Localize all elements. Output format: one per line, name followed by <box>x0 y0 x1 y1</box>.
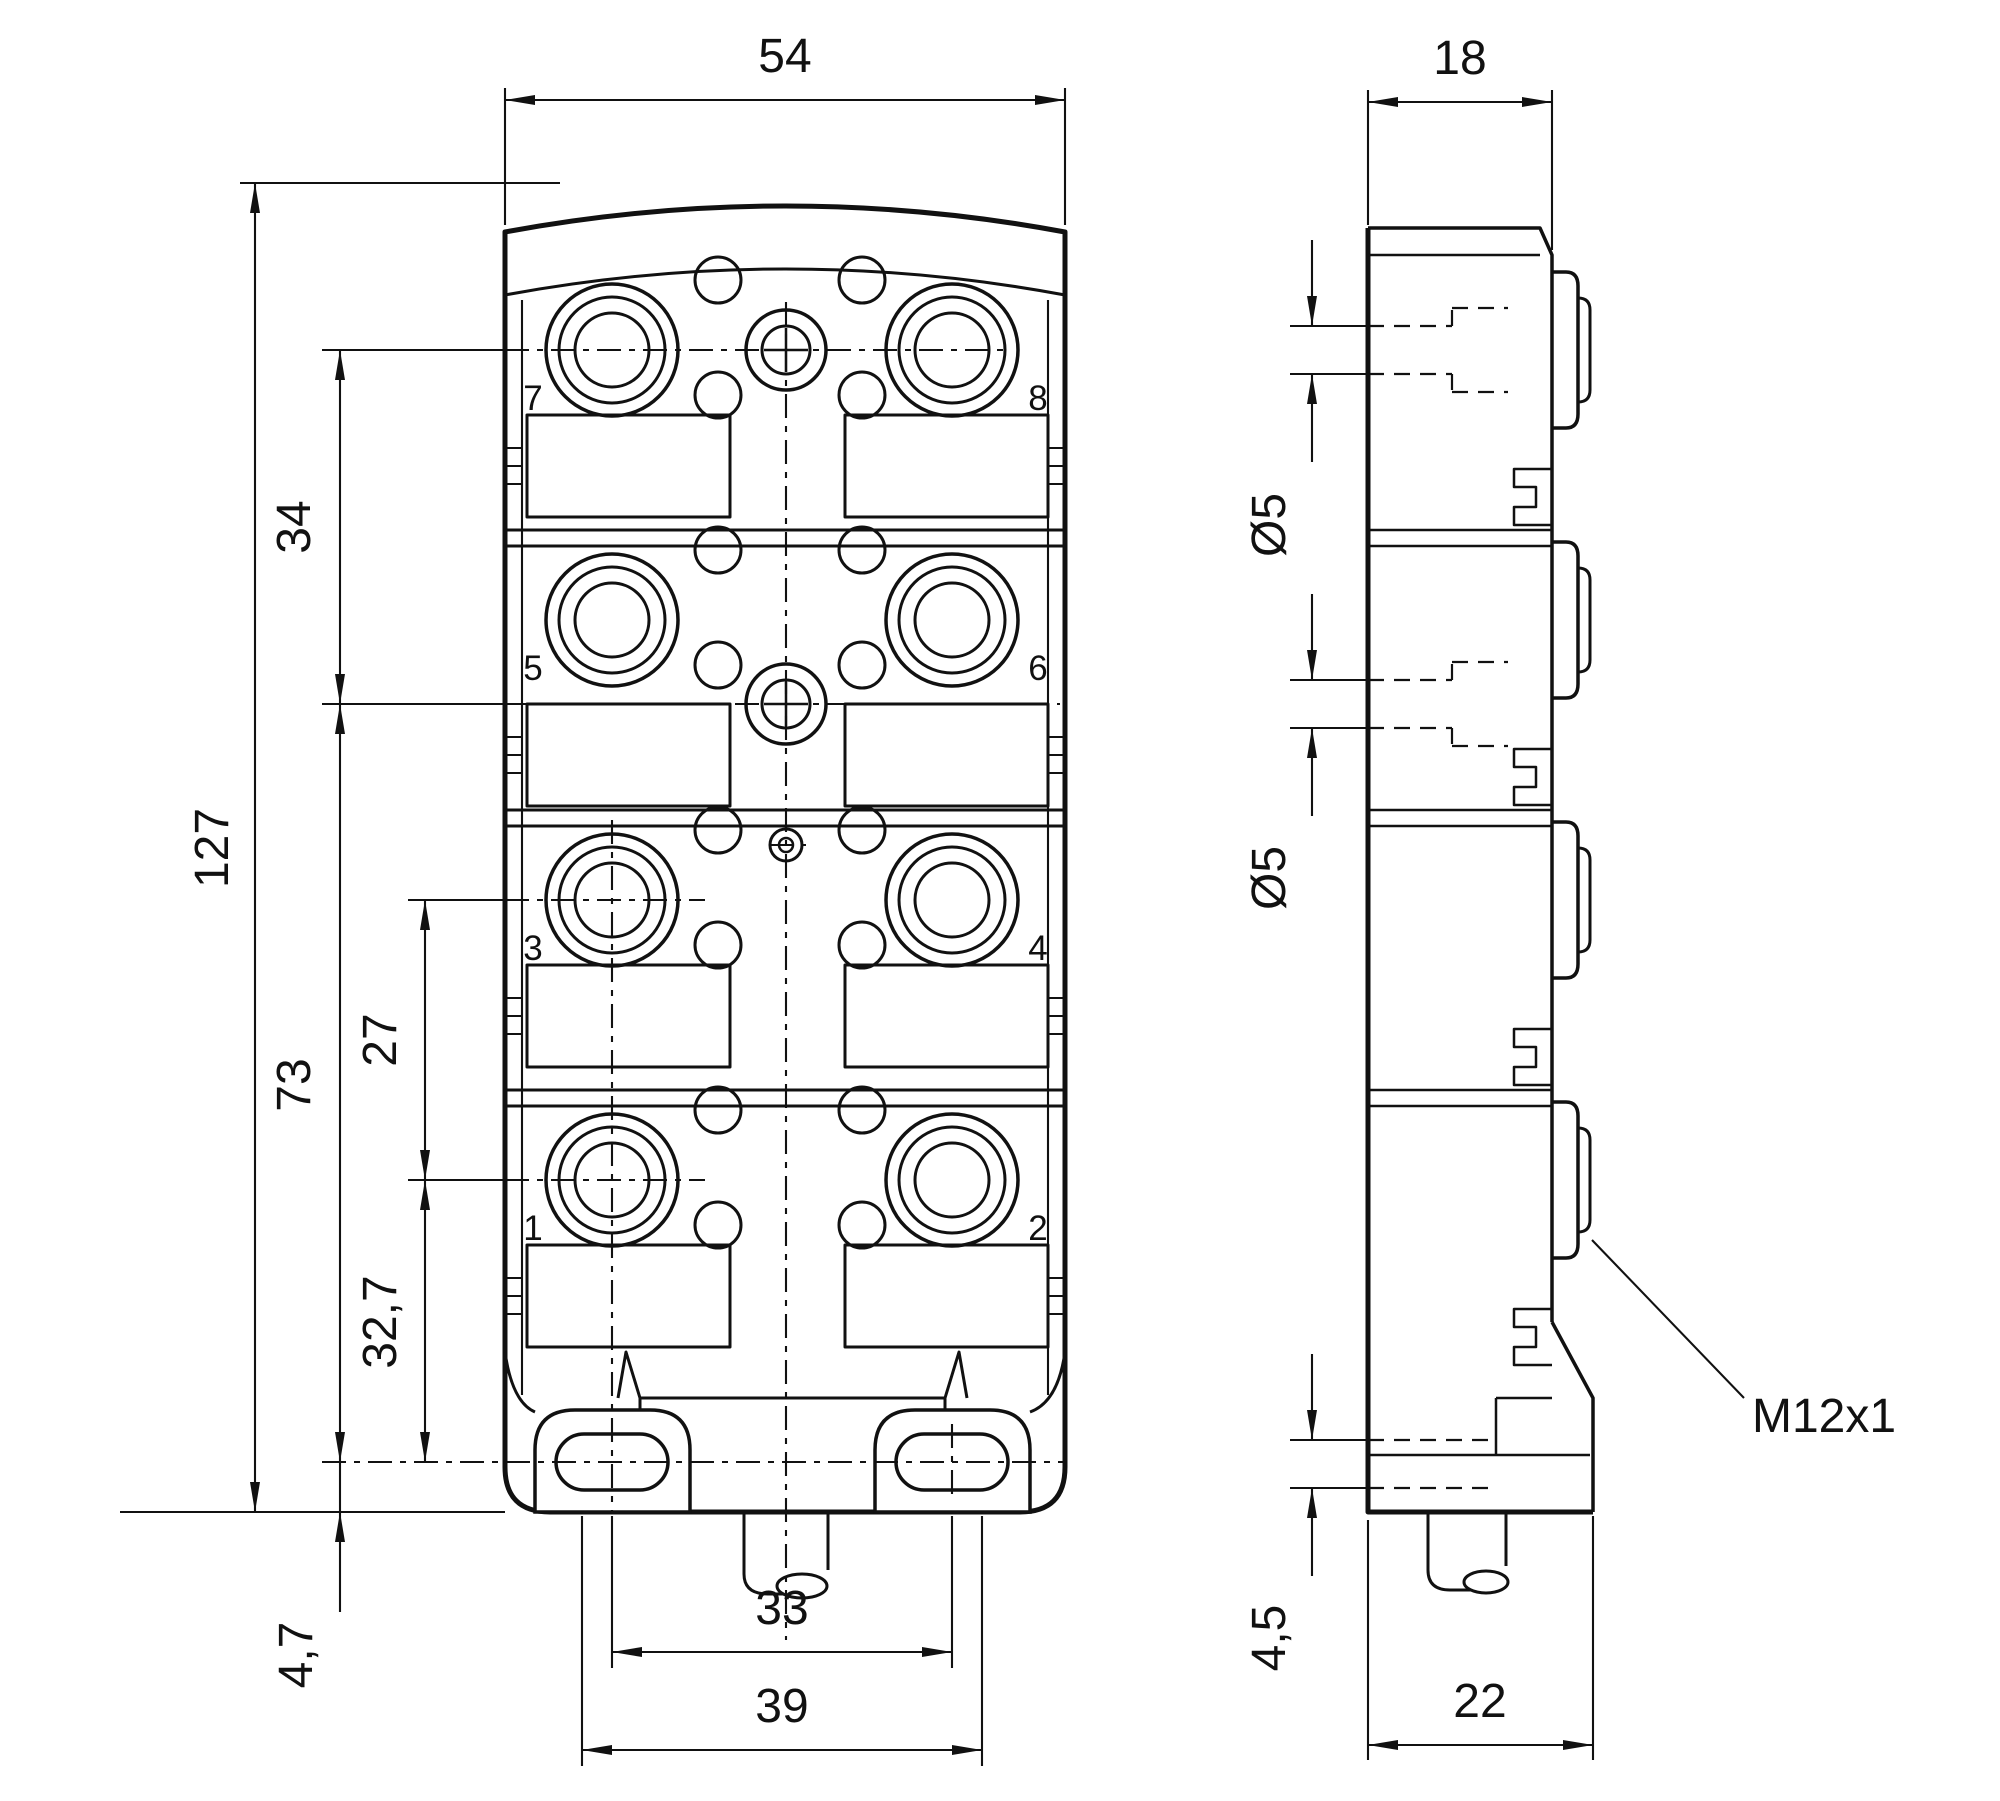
port-8-label: 8 <box>1028 379 1047 418</box>
dimension-drawing: 7 8 5 6 3 4 <box>0 0 2000 1801</box>
port-7-label: 7 <box>523 379 542 418</box>
port-2-connector <box>886 1114 1018 1246</box>
port-4-label: 4 <box>1028 929 1047 968</box>
svg-text:27: 27 <box>354 1013 407 1066</box>
svg-text:4,7: 4,7 <box>270 1622 323 1689</box>
svg-text:4,5: 4,5 <box>1243 1605 1296 1672</box>
front-view: 7 8 5 6 3 4 <box>120 30 1065 1766</box>
side-view: 18 Ø5 Ø5 4,5 22 M12x1 <box>1243 32 1896 1760</box>
led-indicators-1-2 <box>695 1087 885 1248</box>
side-foot <box>1368 1322 1593 1512</box>
port-6-label: 6 <box>1028 649 1047 688</box>
svg-text:33: 33 <box>755 1582 808 1635</box>
port-4-connector <box>886 834 1018 966</box>
thread-label: M12x1 <box>1752 1390 1896 1443</box>
svg-text:18: 18 <box>1433 32 1486 85</box>
dim-depth-18: 18 <box>1368 32 1552 250</box>
dim-hole-dia-mid: Ø5 <box>1243 594 1368 910</box>
svg-text:54: 54 <box>758 30 811 83</box>
port-6-connector <box>886 554 1018 686</box>
svg-text:34: 34 <box>268 500 321 553</box>
svg-text:Ø5: Ø5 <box>1243 493 1296 557</box>
port-1-label: 1 <box>523 1209 542 1248</box>
svg-text:73: 73 <box>268 1058 321 1111</box>
dim-top-section-34: 34 <box>268 350 505 704</box>
dim-slot-center-33: 33 <box>612 1516 952 1668</box>
dim-hole-dia-top: Ø5 <box>1243 240 1368 557</box>
dim-base-offset-4-7: 4,7 <box>270 1462 340 1688</box>
dim-foot-spacing-32-7: 32,7 <box>354 1180 425 1462</box>
side-connector-bumps <box>1552 272 1590 1258</box>
side-body-outline <box>1368 228 1593 1512</box>
svg-text:127: 127 <box>186 808 239 888</box>
led-indicators-7-8 <box>695 257 885 418</box>
drawing-canvas: 7 8 5 6 3 4 <box>0 0 2000 1801</box>
hidden-hole-top <box>1368 308 1508 392</box>
port-5-label: 5 <box>523 649 542 688</box>
dim-base-depth-22: 22 <box>1368 1516 1593 1760</box>
port-3-label: 3 <box>523 929 542 968</box>
svg-text:39: 39 <box>755 1680 808 1733</box>
svg-text:32,7: 32,7 <box>354 1275 407 1368</box>
port-5-connector <box>546 554 678 686</box>
dim-port-spacing-27: 27 <box>354 900 505 1180</box>
hidden-hole-mid <box>1368 662 1508 746</box>
module-1-2: 1 2 <box>507 1087 1063 1347</box>
dim-bottom-section-73: 73 <box>268 704 340 1462</box>
dim-width-54: 54 <box>505 30 1065 225</box>
port-2-label: 2 <box>1028 1209 1047 1248</box>
dim-foot-slot-4-5: 4,5 <box>1243 1354 1368 1671</box>
led-indicators-3-4 <box>695 807 885 968</box>
side-latches <box>1514 469 1552 1365</box>
svg-text:Ø5: Ø5 <box>1243 846 1296 910</box>
cable-outlet-side <box>1428 1512 1508 1593</box>
thread-callout-m12x1: M12x1 <box>1592 1240 1896 1443</box>
svg-text:22: 22 <box>1453 1675 1506 1728</box>
dim-slot-outer-39: 39 <box>582 1516 982 1766</box>
